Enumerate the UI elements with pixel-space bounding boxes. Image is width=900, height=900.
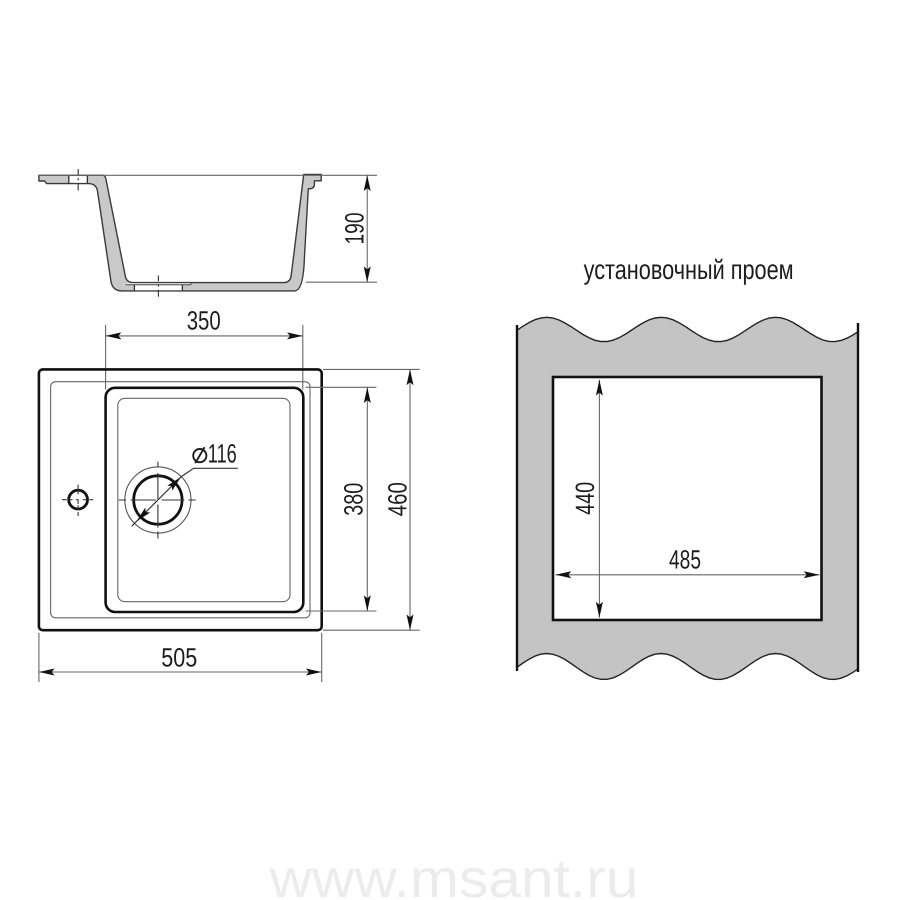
svg-text:460: 460 (382, 482, 412, 516)
svg-text:350: 350 (187, 305, 221, 335)
svg-text:установочный проем: установочный проем (584, 254, 794, 285)
svg-text:485: 485 (669, 544, 701, 574)
svg-text:505: 505 (161, 643, 197, 673)
svg-text:380: 380 (338, 483, 368, 516)
svg-text:116: 116 (208, 439, 237, 469)
svg-text:440: 440 (570, 482, 600, 515)
svg-text:www.msant.ru: www.msant.ru (268, 849, 638, 900)
svg-text:190: 190 (339, 213, 369, 245)
